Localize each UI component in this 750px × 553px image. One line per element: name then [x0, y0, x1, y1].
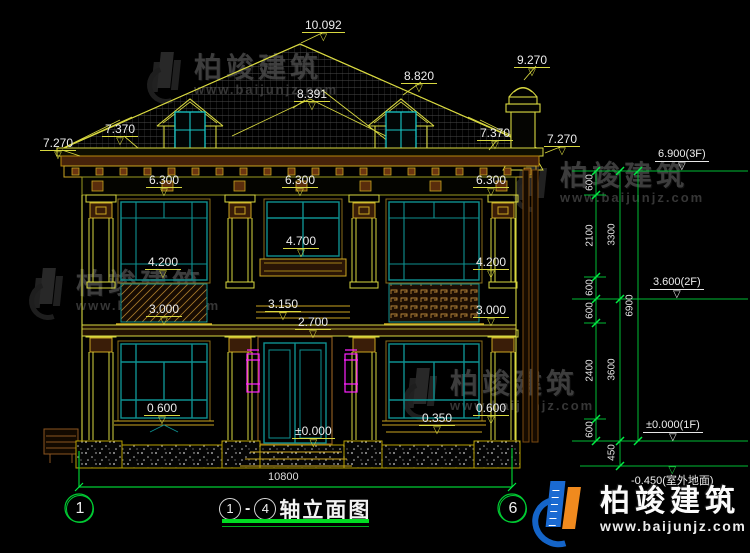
elev-value: 0.350 — [419, 412, 455, 426]
elev-label-dormer-ridge: 8.820 — [401, 70, 437, 93]
brand-name: 柏竣建筑 — [600, 486, 746, 518]
overall-width-dim: 10800 — [268, 471, 299, 483]
vdim: 6900 — [625, 284, 636, 328]
elev-label-balcony: 4.700 — [283, 235, 319, 258]
window-2f-right — [384, 199, 484, 324]
elev-value: 8.820 — [401, 70, 437, 84]
elev-label-cornice-right: 6.300 — [473, 174, 509, 197]
cad-elevation-drawing: 柏竣建筑 www.baijunjz.com 柏竣建筑 www.baijunjz.… — [0, 0, 750, 553]
elev-value: 7.370 — [102, 123, 138, 137]
elev-value: 7.370 — [477, 127, 513, 141]
elev-value: 7.270 — [40, 137, 76, 151]
title-dash: - — [245, 500, 250, 518]
elev-label-eave-right-inner: 7.370 — [477, 127, 513, 150]
elev-label-spandrel-left: 3.000 — [146, 303, 182, 326]
level-marker-1f: ±0.000(1F) — [643, 419, 703, 442]
vdim: 3300 — [607, 213, 618, 257]
title-axis-end-bubble: 4 — [254, 498, 276, 520]
elev-value: 3.150 — [265, 298, 301, 312]
elev-label-door-head: 2.700 — [295, 316, 331, 339]
elev-label-cornice-center: 6.300 — [282, 174, 318, 197]
elev-label-sill-right: 0.600 — [473, 402, 509, 425]
elev-label-cornice-left: 6.300 — [146, 174, 182, 197]
elev-label-sill-left: 0.600 — [144, 402, 180, 425]
console-bracket — [44, 429, 78, 463]
elev-value: 0.600 — [473, 402, 509, 416]
wall-lamps — [246, 350, 358, 392]
vdim: 450 — [607, 431, 618, 475]
elev-value: 3.000 — [146, 303, 182, 317]
elev-label-eave-left-inner: 7.370 — [102, 123, 138, 146]
brand-url: www.baijunjz.com — [600, 518, 746, 534]
title-underline-thin — [222, 526, 369, 527]
title-underline — [222, 519, 369, 523]
brand-logo-icon — [534, 479, 590, 541]
elev-label-roof-mid: 8.391 — [294, 88, 330, 111]
elev-label-window2f-left: 4.200 — [145, 256, 181, 279]
elev-value: 8.391 — [294, 88, 330, 102]
level-value: 6.900(3F) — [655, 148, 709, 162]
axis-bubble-6: 6 — [499, 495, 527, 523]
elev-value: 4.200 — [145, 256, 181, 270]
elev-label-eave-right-outer: 7.270 — [544, 133, 580, 156]
elev-value: 6.300 — [146, 174, 182, 188]
level-value: ±0.000(1F) — [643, 419, 703, 433]
elev-value: 6.300 — [282, 174, 318, 188]
elev-label-window2f-right: 4.200 — [473, 256, 509, 279]
elev-label-sill-right-low: 0.350 — [419, 412, 455, 435]
vdim: 2100 — [585, 214, 596, 258]
elev-value: 4.200 — [473, 256, 509, 270]
axis-bubble-1: 1 — [66, 495, 94, 523]
elev-value: 0.600 — [144, 402, 180, 416]
level-marker-3f: 6.900(3F) — [655, 148, 709, 171]
elev-label-roof-peak: 10.092 — [302, 19, 345, 42]
downpipe — [523, 170, 538, 442]
level-marker-2f: 3.600(2F) — [650, 276, 704, 299]
brand-logo: 柏竣建筑 www.baijunjz.com — [534, 479, 746, 541]
elev-value: 2.700 — [295, 316, 331, 330]
elev-label-eave-left-outer: 7.270 — [40, 137, 76, 160]
elev-label-floor-zero: ±0.000 — [292, 425, 335, 448]
elev-value: 6.300 — [473, 174, 509, 188]
title-axis-start-bubble: 1 — [219, 498, 241, 520]
elev-value: 9.270 — [514, 54, 550, 68]
elev-value: 3.000 — [473, 304, 509, 318]
vdim: 600 — [585, 289, 596, 333]
vdim: 3600 — [607, 348, 618, 392]
elev-value: 7.270 — [544, 133, 580, 147]
vdim: 2400 — [585, 349, 596, 393]
elev-label-chimney: 9.270 — [514, 54, 550, 77]
elev-value: 4.700 — [283, 235, 319, 249]
elev-label-spandrel-right: 3.000 — [473, 304, 509, 327]
elev-value: 10.092 — [302, 19, 345, 33]
vdim: 600 — [585, 408, 596, 452]
elev-value: ±0.000 — [292, 425, 335, 439]
vdim: 600 — [585, 161, 596, 205]
level-value: 3.600(2F) — [650, 276, 704, 290]
